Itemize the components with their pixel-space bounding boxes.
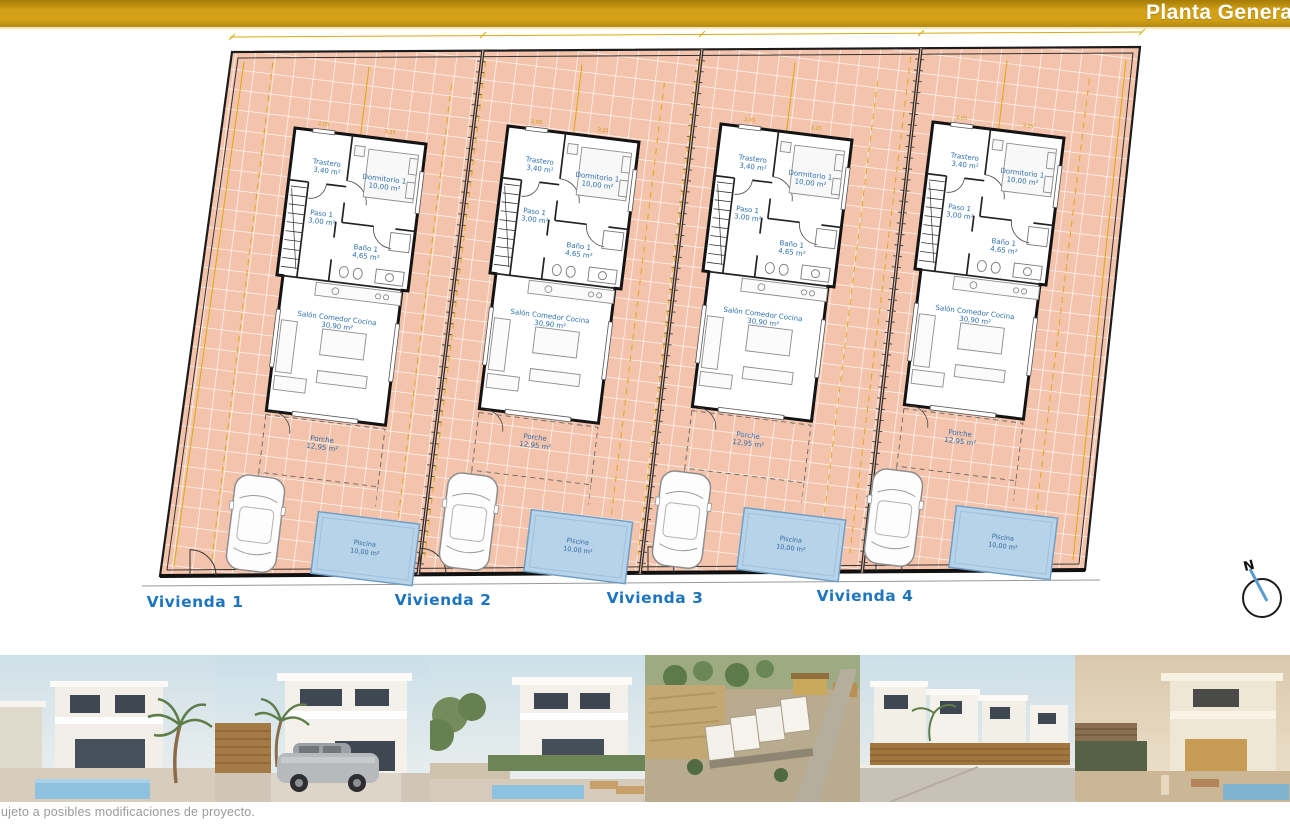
pool: Piscina 10,00 m² [949,506,1058,580]
vivienda-1-label: Vivienda 1 [147,593,244,611]
page: Planta General [0,0,1290,840]
pool: Piscina 10,00 m² [737,508,846,582]
north-compass: N [1242,558,1281,617]
north-letter: N [1242,558,1256,575]
room-label-paso: Paso 1 3,00 m² [734,204,763,223]
gallery-photo-2 [215,655,430,802]
disclaimer-text: ujeto a posibles modificaciones de proye… [1,805,255,819]
room-label-paso: Paso 1 3,00 m² [521,206,550,225]
room-label-bano: Baño 1 4,65 m² [990,237,1019,256]
room-label-paso: Paso 1 3,00 m² [308,208,337,227]
room-label-bano: Baño 1 4,65 m² [352,243,381,262]
photo-gallery [0,655,1290,802]
vivienda-2-label: Vivienda 2 [395,591,492,609]
room-label-bano: Baño 1 4,65 m² [565,241,594,260]
gallery-photo-5 [860,655,1075,802]
pool: Piscina 10,00 m² [524,510,633,584]
room-label-paso: Paso 1 3,00 m² [946,202,975,221]
pool: Piscina 10,00 m² [311,512,420,586]
gallery-photo-4 [645,655,860,802]
gallery-photo-1 [0,655,215,802]
room-label-bano: Baño 1 4,65 m² [778,239,807,258]
gallery-photo-3 [430,655,645,802]
site-plan-drawing: 3,15 2,05 Trastero 3,40 m² Dormitorio 1 … [0,0,1290,650]
north-needle [1250,569,1267,601]
vivienda-3-label: Vivienda 3 [607,589,704,607]
vivienda-4-label: Vivienda 4 [817,587,914,605]
gallery-photo-6 [1075,655,1290,802]
